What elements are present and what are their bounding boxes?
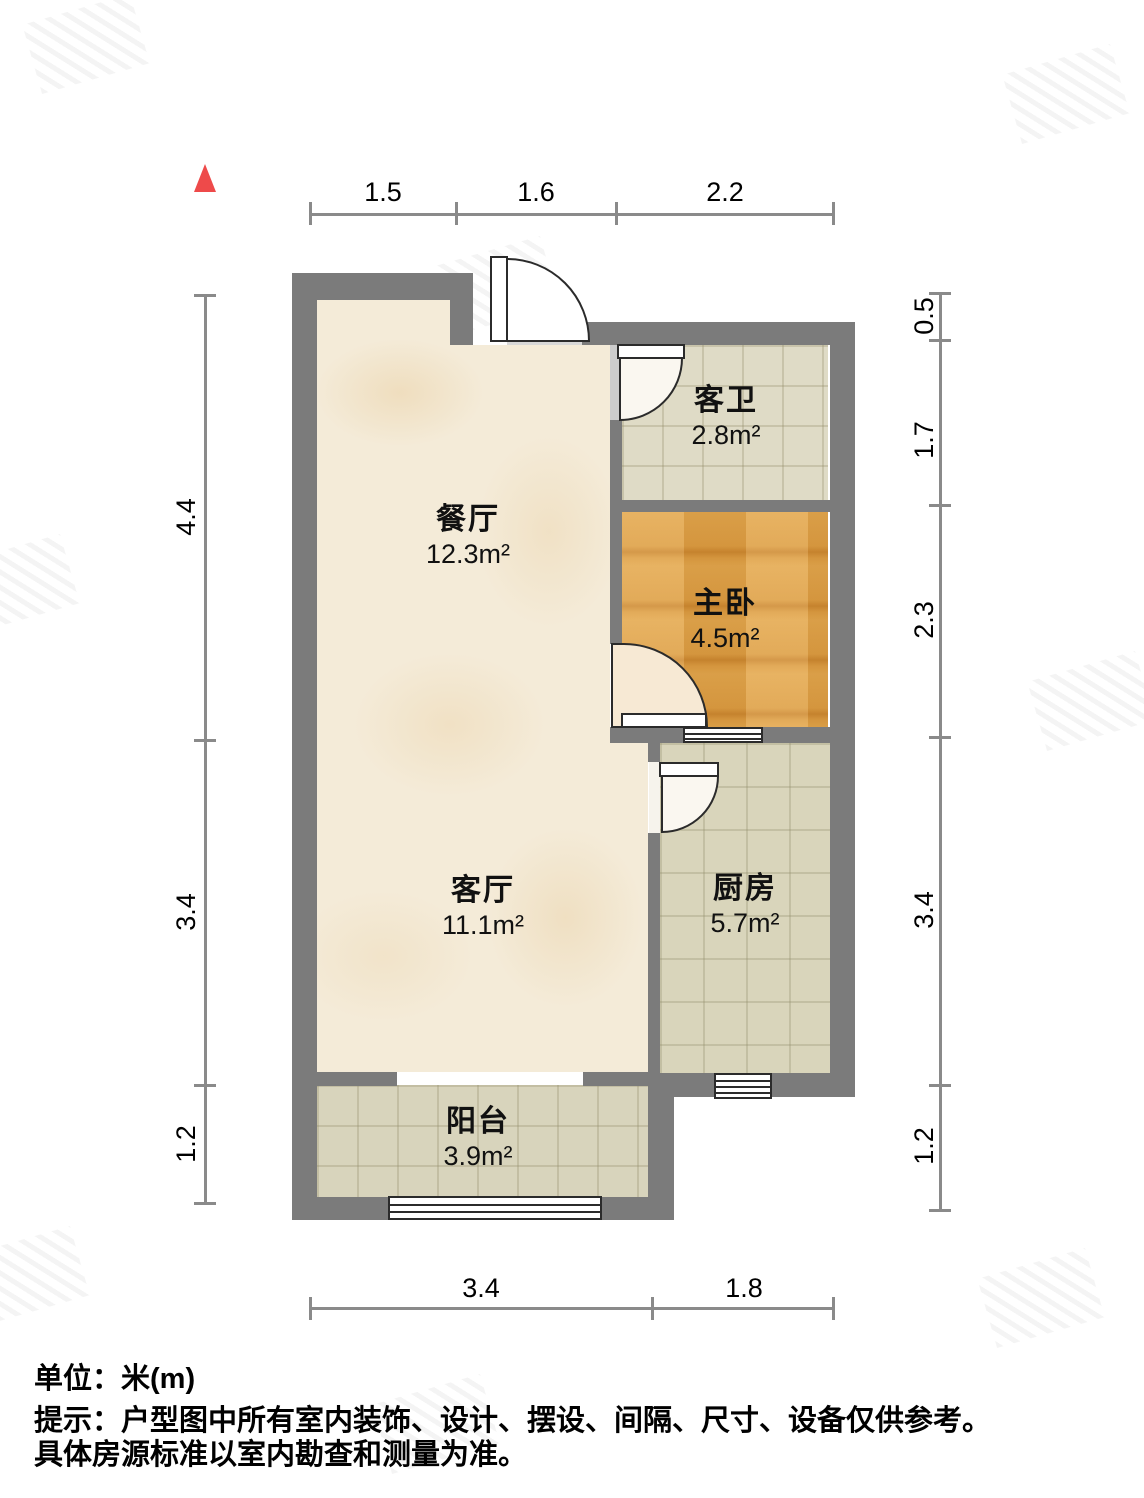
footer-unit-note: 单位：米(m) — [34, 1362, 195, 1396]
wall — [830, 322, 855, 1097]
wall — [648, 833, 660, 1073]
dim-label: 1.8 — [704, 1272, 784, 1304]
room-area: 11.1m² — [403, 909, 563, 942]
dim-tick — [194, 294, 216, 297]
dim-line-left — [204, 295, 207, 1204]
footer-disclaimer-2: 具体房源标准以室内勘查和测量为准。 — [34, 1438, 527, 1472]
room-area: 12.3m² — [388, 538, 548, 571]
dim-tick — [309, 202, 312, 225]
bath-door-opening — [610, 345, 622, 420]
dim-label: 3.4 — [170, 872, 202, 952]
room-name: 主卧 — [645, 586, 805, 622]
dim-label: 4.4 — [170, 477, 202, 557]
dim-label: 3.4 — [441, 1272, 521, 1304]
dim-tick — [929, 1084, 951, 1087]
room-name: 厨房 — [665, 871, 825, 907]
room-area: 5.7m² — [665, 907, 825, 940]
wall — [450, 273, 473, 345]
dim-tick — [651, 1297, 654, 1320]
watermark — [22, 0, 150, 94]
watermark — [0, 534, 80, 634]
balcony-window — [388, 1196, 602, 1220]
dim-tick — [929, 504, 951, 507]
wall — [610, 420, 622, 500]
dim-label: 3.4 — [908, 870, 940, 950]
dim-line-bottom — [310, 1307, 835, 1310]
room-area: 2.8m² — [646, 419, 806, 452]
dim-tick — [309, 1297, 312, 1320]
room-label-balcony: 阳台 3.9m² — [398, 1104, 558, 1173]
watermark — [1027, 651, 1144, 751]
room-label-dining: 餐厅 12.3m² — [388, 502, 548, 571]
room-name: 客厅 — [403, 873, 563, 909]
watermark — [0, 1226, 90, 1326]
dim-tick — [832, 1297, 835, 1320]
dim-tick — [194, 1084, 216, 1087]
room-name: 餐厅 — [388, 502, 548, 538]
dim-label: 0.5 — [908, 276, 940, 356]
room-area: 3.9m² — [398, 1140, 558, 1173]
dim-tick — [455, 202, 458, 225]
dim-tick — [832, 202, 835, 225]
dim-label: 2.2 — [685, 176, 765, 208]
kitchen-window — [714, 1073, 772, 1099]
entrance-threshold — [507, 322, 582, 345]
bedroom-window — [683, 727, 763, 743]
wall — [610, 500, 830, 512]
dim-tick — [929, 1209, 951, 1212]
dim-tick — [194, 739, 216, 742]
wall — [292, 273, 473, 300]
wall — [312, 1072, 397, 1086]
room-area: 4.5m² — [645, 622, 805, 655]
dim-label: 1.5 — [343, 176, 423, 208]
wall — [583, 1072, 648, 1086]
dim-line-top — [310, 213, 835, 216]
dim-tick — [194, 1202, 216, 1205]
room-name: 客卫 — [646, 383, 806, 419]
dim-label: 1.2 — [908, 1106, 940, 1186]
wall — [648, 743, 660, 762]
dim-label: 1.7 — [908, 400, 940, 480]
watermark — [977, 1248, 1105, 1348]
north-arrow-icon — [194, 164, 216, 192]
dim-tick — [615, 202, 618, 225]
floorplan-canvas: 餐厅 12.3m² 客卫 2.8m² 主卧 4.5m² 客厅 11.1m² 厨房… — [0, 0, 1144, 1498]
dim-label: 1.2 — [170, 1104, 202, 1184]
room-label-living: 客厅 11.1m² — [403, 873, 563, 942]
room-name: 阳台 — [398, 1104, 558, 1140]
watermark — [1002, 44, 1130, 144]
room-label-master-bedroom: 主卧 4.5m² — [645, 586, 805, 655]
dim-label: 2.3 — [908, 580, 940, 660]
wall — [582, 322, 855, 345]
dim-label: 1.6 — [496, 176, 576, 208]
dining-living-floor — [317, 300, 648, 1072]
dim-tick — [929, 736, 951, 739]
footer-disclaimer: 提示：户型图中所有室内装饰、设计、摆设、间隔、尺寸、设备仅供参考。 — [34, 1404, 991, 1438]
wall — [610, 512, 622, 644]
room-label-guest-bath: 客卫 2.8m² — [646, 383, 806, 452]
room-label-kitchen: 厨房 5.7m² — [665, 871, 825, 940]
